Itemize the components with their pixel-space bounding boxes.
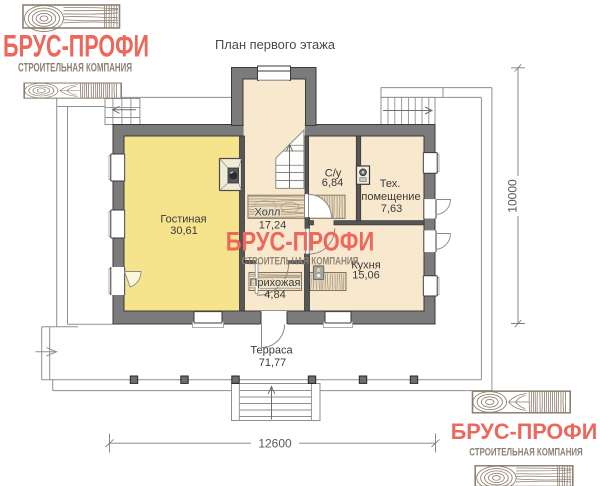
svg-text:12600: 12600 (258, 437, 292, 451)
svg-text:10000: 10000 (506, 179, 520, 213)
svg-text:Гостиная: Гостиная (160, 214, 206, 226)
svg-text:7,63: 7,63 (381, 203, 402, 215)
svg-text:Холл: Холл (255, 207, 281, 219)
svg-text:СТРОИТЕЛЬНАЯ КОМПАНИЯ: СТРОИТЕЛЬНАЯ КОМПАНИЯ (18, 63, 132, 75)
svg-text:Прихожая: Прихожая (250, 277, 301, 289)
svg-text:Тех.: Тех. (380, 178, 401, 190)
svg-text:71,77: 71,77 (259, 357, 287, 369)
svg-text:БРУС-ПРОФИ: БРУС-ПРОФИ (226, 227, 374, 257)
svg-text:помещение: помещение (361, 191, 420, 203)
svg-text:Терраса: Терраса (250, 345, 293, 357)
svg-text:СТРОИТЕЛЬНАЯ КОМПАНИЯ: СТРОИТЕЛЬНАЯ КОМПАНИЯ (242, 255, 359, 267)
svg-text:БРУС-ПРОФИ: БРУС-ПРОФИ (451, 419, 598, 444)
svg-text:План первого этажа: План первого этажа (215, 37, 336, 52)
svg-text:6,84: 6,84 (322, 177, 343, 189)
svg-text:30,61: 30,61 (170, 225, 198, 237)
svg-text:15,06: 15,06 (352, 270, 380, 282)
svg-text:СТРОИТЕЛЬНАЯ КОМПАНИЯ: СТРОИТЕЛЬНАЯ КОМПАНИЯ (469, 447, 582, 459)
svg-text:4,84: 4,84 (264, 289, 285, 301)
svg-text:БРУС-ПРОФИ: БРУС-ПРОФИ (3, 28, 149, 64)
